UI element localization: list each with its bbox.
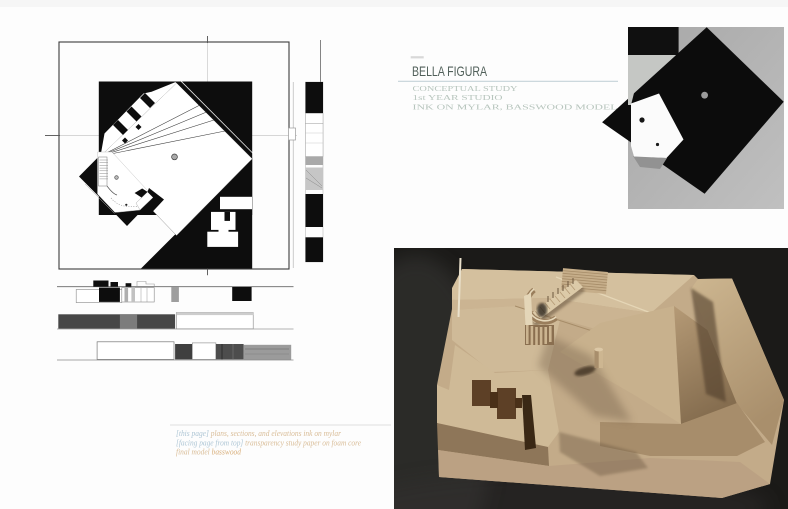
svg-text:[this page] plans, sections, a: [this page] plans, sections, and elevati… [176,429,342,438]
svg-text:1st YEAR STUDIO: 1st YEAR STUDIO [413,94,503,102]
svg-text:[facing page from top] transpa: [facing page from top] transparency stud… [176,438,361,447]
svg-text:INK ON MYLAR, BASSWOOD MODEL: INK ON MYLAR, BASSWOOD MODEL [413,103,618,111]
svg-text:final model basswood: final model basswood [176,448,242,457]
svg-text:BELLA FIGURA: BELLA FIGURA [412,64,488,79]
svg-text:CONCEPTUAL STUDY: CONCEPTUAL STUDY [413,85,518,93]
